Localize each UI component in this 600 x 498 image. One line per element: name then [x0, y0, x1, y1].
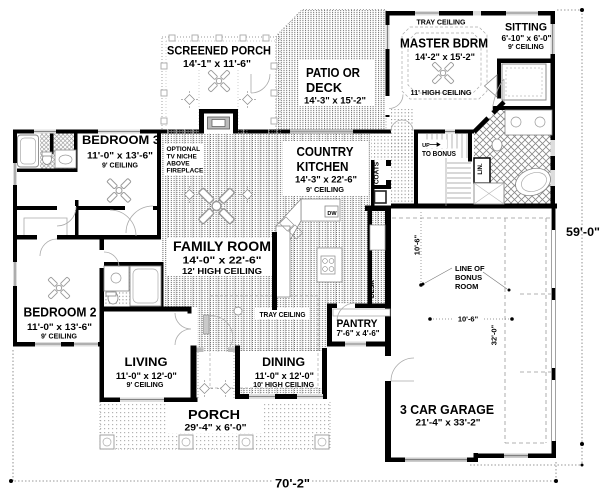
svg-text:MASTER BDRM: MASTER BDRM — [400, 36, 488, 51]
svg-text:12' HIGH CEILING: 12' HIGH CEILING — [182, 267, 262, 276]
svg-text:BEDROOM 2: BEDROOM 2 — [24, 306, 97, 320]
svg-text:ABOVE: ABOVE — [167, 161, 191, 168]
svg-text:14'-2" x 15'-2": 14'-2" x 15'-2" — [415, 52, 475, 63]
svg-text:ROOM: ROOM — [455, 282, 478, 291]
svg-text:FIREPLACE: FIREPLACE — [167, 168, 205, 175]
svg-text:9' CEILING: 9' CEILING — [127, 380, 164, 389]
svg-text:10'-6": 10'-6" — [413, 234, 422, 255]
svg-text:UP: UP — [422, 143, 430, 149]
svg-text:FAMILY ROOM: FAMILY ROOM — [173, 239, 271, 254]
svg-text:TV NICHE: TV NICHE — [167, 154, 198, 161]
svg-text:29'-4" x 6'-0": 29'-4" x 6'-0" — [185, 423, 247, 434]
svg-text:14'-3" x 22'-6": 14'-3" x 22'-6" — [295, 175, 357, 186]
svg-text:LIN.: LIN. — [478, 163, 484, 175]
svg-text:BEDROOM 3: BEDROOM 3 — [82, 133, 160, 147]
svg-text:COATS: COATS — [374, 161, 381, 184]
svg-text:3 CAR GARAGE: 3 CAR GARAGE — [400, 402, 494, 417]
svg-text:70'-2": 70'-2" — [275, 477, 310, 491]
svg-text:9' CEILING: 9' CEILING — [41, 332, 77, 341]
svg-text:10' HIGH CEILING: 10' HIGH CEILING — [253, 380, 314, 389]
svg-text:7'-6" x 4'-6": 7'-6" x 4'-6" — [337, 329, 380, 338]
svg-text:PATIO OR: PATIO OR — [306, 65, 361, 80]
svg-text:14'-3" x 15'-2": 14'-3" x 15'-2" — [304, 96, 366, 107]
svg-text:SCREENED PORCH: SCREENED PORCH — [167, 44, 271, 58]
svg-text:DW: DW — [327, 211, 337, 217]
svg-text:BONUS: BONUS — [455, 273, 482, 282]
svg-text:9' CEILING: 9' CEILING — [508, 42, 544, 51]
svg-text:SITTING: SITTING — [505, 22, 547, 34]
svg-text:9' CEILING: 9' CEILING — [306, 185, 344, 194]
svg-text:TO BONUS: TO BONUS — [422, 151, 456, 158]
svg-text:PORCH: PORCH — [188, 407, 240, 422]
svg-text:LIVING: LIVING — [125, 355, 168, 369]
svg-text:COUNTRY: COUNTRY — [297, 145, 355, 159]
svg-text:DESK: DESK — [369, 280, 376, 298]
svg-text:21'-4" x 33'-2": 21'-4" x 33'-2" — [416, 418, 481, 429]
svg-text:LINE OF: LINE OF — [455, 264, 485, 273]
svg-text:TRAY CEILING: TRAY CEILING — [260, 310, 306, 319]
svg-text:DINING: DINING — [262, 355, 305, 369]
svg-text:9' CEILING: 9' CEILING — [102, 161, 138, 170]
svg-text:TRAY CEILING: TRAY CEILING — [417, 18, 466, 27]
svg-text:32'-0": 32'-0" — [490, 324, 499, 345]
svg-text:14'-0" x 22'-6": 14'-0" x 22'-6" — [183, 256, 262, 267]
svg-text:11' HIGH CEILING: 11' HIGH CEILING — [411, 88, 472, 97]
svg-text:DECK: DECK — [306, 80, 343, 95]
svg-text:KITCHEN: KITCHEN — [297, 160, 349, 174]
svg-text:10'-6": 10'-6" — [458, 315, 479, 324]
svg-text:59'-0": 59'-0" — [566, 225, 600, 239]
svg-text:14'-1" x 11'-6": 14'-1" x 11'-6" — [183, 59, 251, 70]
svg-text:OPTIONAL: OPTIONAL — [167, 146, 201, 153]
